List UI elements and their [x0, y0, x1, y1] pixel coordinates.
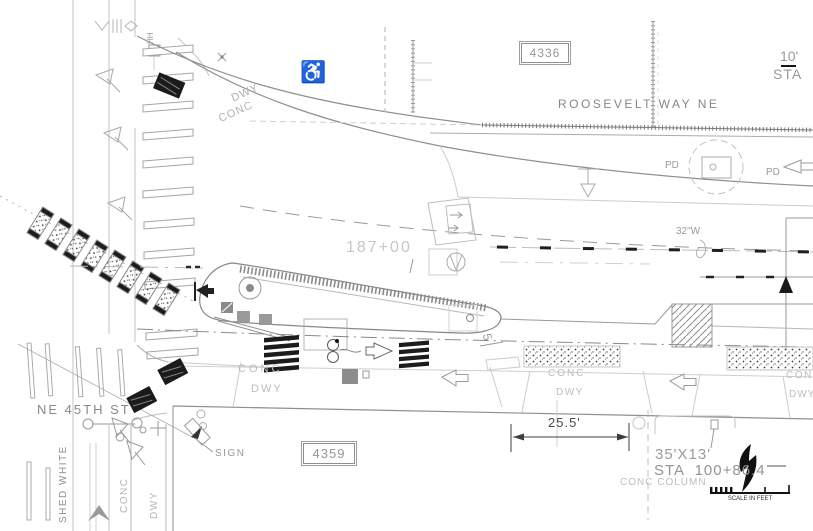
flow-arrows-left-street	[96, 69, 132, 220]
shelter-footing	[259, 314, 272, 325]
scale-bar	[710, 485, 790, 493]
x-survey-mark	[218, 53, 226, 61]
plan-drawing-canvas[interactable]: 4336 4359 ROOSEVELT WAY NE NE 45TH ST 18…	[0, 0, 813, 531]
roosevelt-way-curbs	[137, 36, 813, 251]
sign-symbol	[185, 410, 213, 452]
utility-pad	[342, 369, 358, 384]
survey-baseline	[70, 259, 650, 273]
parcel-number-south: 4359	[303, 443, 355, 464]
pd-label-1: PD	[665, 161, 679, 171]
intersection-symbols	[83, 418, 166, 465]
stippled-pavement-patch	[524, 346, 620, 367]
bike-arrow-east	[366, 343, 392, 359]
sta-top-right: STA	[773, 67, 802, 81]
dim-driveway-width: 25.5'	[548, 416, 581, 429]
hatched-area	[672, 304, 712, 347]
handhole-label: HH	[147, 32, 155, 44]
scale-caption: SCALE IN FEET	[710, 496, 790, 502]
bike-lane-marking	[328, 339, 393, 363]
water-main-32w	[490, 240, 813, 258]
conc-label-far-right: CONC	[786, 371, 813, 381]
curb-ramps	[126, 72, 188, 413]
shelter-footing	[237, 311, 250, 322]
conc-label-right: CONC	[548, 369, 585, 379]
pavement-marking-note: SHED WHITE	[59, 445, 69, 523]
street-tree	[689, 140, 743, 194]
property-fence-lines	[385, 21, 658, 128]
dim-10ft: 10'	[780, 49, 798, 63]
conc-label-center: CONC	[238, 364, 282, 375]
chevron-marking	[88, 505, 110, 521]
match-line-right	[700, 218, 813, 350]
conc-label-vertical: CONC	[120, 478, 130, 513]
sign-label: SIGN	[215, 449, 245, 459]
stippled-pavement-patch	[727, 347, 813, 370]
dwy-label-right: DWY	[556, 388, 584, 398]
utility-vaults	[428, 198, 476, 275]
dwy-label-vertical: DWY	[150, 491, 160, 519]
station-187: 187+00	[346, 240, 412, 256]
street-name-ne45th: NE 45TH ST	[37, 403, 131, 416]
flow-arrow-roosevelt	[578, 169, 598, 197]
thin-crosswalk-bars-sw	[27, 337, 125, 520]
pd-service-arrow	[784, 160, 813, 173]
water-main-label: 32"W	[676, 227, 700, 237]
crosswalk-ladder-east	[399, 341, 429, 369]
parcel-number-north: 4336	[521, 43, 569, 63]
dwy-label-center: DWY	[251, 384, 283, 395]
conc-column-label: CONC COLUMN	[620, 478, 707, 488]
column-station: STA 100+86.4	[654, 463, 766, 478]
accessible-ramp-icon: ♿	[300, 62, 326, 83]
street-name-roosevelt: ROOSEVELT WAY NE	[558, 98, 719, 110]
column-size: 35'X13'	[655, 447, 711, 462]
ne45th-linework	[18, 304, 813, 531]
dwy-label-far-right: DWY	[789, 390, 813, 400]
pd-label-2: PD	[766, 168, 780, 178]
